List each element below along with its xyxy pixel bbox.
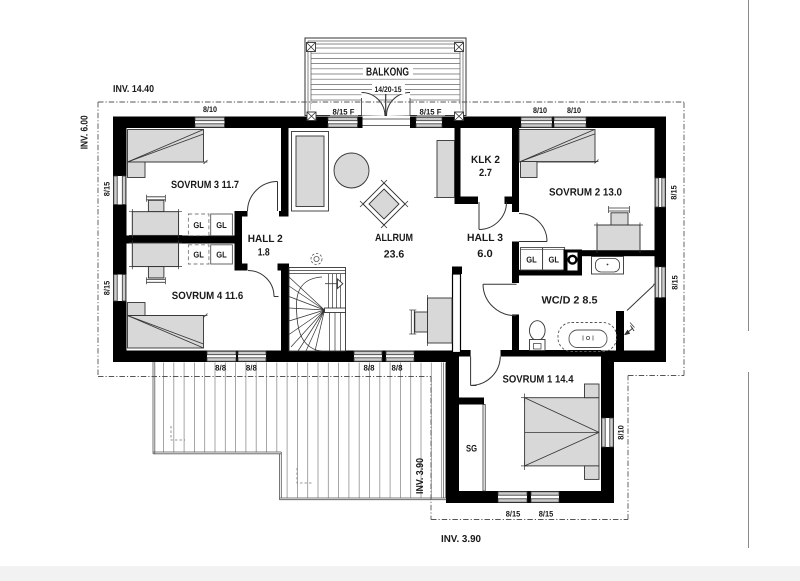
svg-text:1.8: 1.8 bbox=[258, 247, 270, 259]
svg-text:GL: GL bbox=[193, 250, 204, 260]
svg-text:2.7: 2.7 bbox=[479, 167, 492, 179]
svg-text:INV. 3.90: INV. 3.90 bbox=[441, 534, 481, 545]
svg-text:SOVRUM 3 11.7: SOVRUM 3 11.7 bbox=[171, 179, 239, 191]
svg-text:8/8: 8/8 bbox=[215, 364, 227, 373]
svg-text:8/15: 8/15 bbox=[103, 181, 112, 196]
svg-text:GL: GL bbox=[193, 220, 204, 230]
svg-text:SOVRUM 1 14.4: SOVRUM 1 14.4 bbox=[503, 374, 574, 386]
svg-text:BALKONG: BALKONG bbox=[366, 67, 409, 79]
svg-text:GL: GL bbox=[526, 255, 537, 265]
svg-text:ALLRUM: ALLRUM bbox=[375, 232, 413, 244]
svg-text:14/20-15: 14/20-15 bbox=[375, 85, 402, 94]
svg-text:8/15: 8/15 bbox=[506, 510, 521, 519]
svg-text:GL: GL bbox=[216, 220, 227, 230]
svg-text:INV. 14.40: INV. 14.40 bbox=[113, 84, 154, 95]
svg-text:8/10: 8/10 bbox=[567, 106, 581, 115]
svg-text:WC/D 2 8.5: WC/D 2 8.5 bbox=[542, 295, 598, 307]
svg-text:8/8: 8/8 bbox=[246, 364, 258, 373]
svg-text:INV. 3.90: INV. 3.90 bbox=[415, 458, 426, 494]
svg-text:GL: GL bbox=[216, 250, 227, 260]
svg-text:8/15: 8/15 bbox=[671, 275, 680, 290]
svg-text:8/10: 8/10 bbox=[533, 106, 547, 115]
svg-text:8/15 F: 8/15 F bbox=[420, 108, 442, 117]
svg-text:8/15: 8/15 bbox=[539, 510, 554, 519]
svg-text:23.6: 23.6 bbox=[384, 249, 405, 261]
svg-text:HALL 3: HALL 3 bbox=[467, 232, 503, 244]
svg-text:8/15: 8/15 bbox=[103, 280, 112, 295]
svg-text:SG: SG bbox=[466, 444, 477, 455]
svg-text:8/15: 8/15 bbox=[670, 185, 679, 200]
svg-text:SOVRUM 4 11.6: SOVRUM 4 11.6 bbox=[172, 290, 244, 302]
svg-text:8/15 F: 8/15 F bbox=[333, 108, 355, 117]
svg-text:INV. 6.00: INV. 6.00 bbox=[80, 115, 91, 149]
svg-text:KLK 2: KLK 2 bbox=[471, 154, 500, 166]
svg-text:6.0: 6.0 bbox=[477, 248, 493, 260]
svg-text:8/8: 8/8 bbox=[392, 364, 404, 373]
svg-text:SOVRUM 2 13.0: SOVRUM 2 13.0 bbox=[549, 187, 622, 199]
svg-text:8/8: 8/8 bbox=[364, 364, 376, 373]
svg-text:8/10: 8/10 bbox=[617, 425, 626, 440]
svg-text:8/10: 8/10 bbox=[203, 105, 217, 114]
svg-text:GL: GL bbox=[548, 255, 559, 265]
svg-text:HALL 2: HALL 2 bbox=[248, 233, 283, 245]
